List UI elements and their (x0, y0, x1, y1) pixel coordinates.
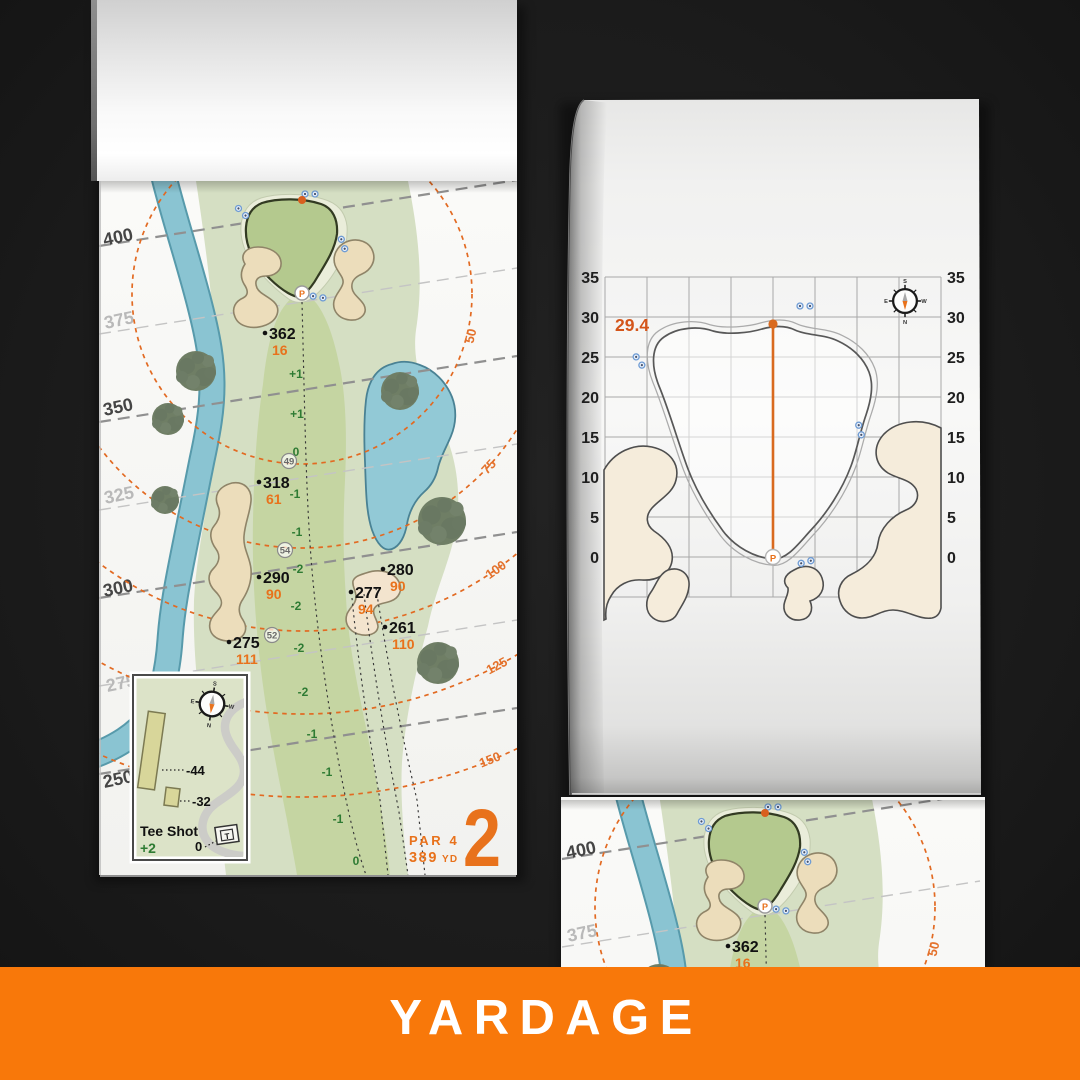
svg-text:0: 0 (590, 550, 599, 567)
svg-text:29.4: 29.4 (615, 315, 649, 335)
svg-text:5: 5 (590, 510, 599, 527)
svg-text:25: 25 (947, 350, 965, 367)
svg-text:30: 30 (581, 310, 599, 327)
svg-text:30: 30 (947, 310, 965, 327)
svg-text:35: 35 (581, 270, 599, 287)
svg-text:10: 10 (947, 470, 965, 487)
svg-text:P: P (770, 554, 777, 565)
svg-text:15: 15 (947, 430, 965, 447)
svg-text:35: 35 (947, 270, 965, 287)
svg-text:0: 0 (947, 550, 956, 567)
svg-text:20: 20 (947, 390, 965, 407)
svg-text:15: 15 (581, 430, 599, 447)
svg-text:20: 20 (581, 390, 599, 407)
svg-text:YARDAGE: YARDAGE (389, 991, 702, 1045)
svg-text:5: 5 (947, 510, 956, 527)
svg-text:10: 10 (581, 470, 599, 487)
svg-text:25: 25 (581, 350, 599, 367)
